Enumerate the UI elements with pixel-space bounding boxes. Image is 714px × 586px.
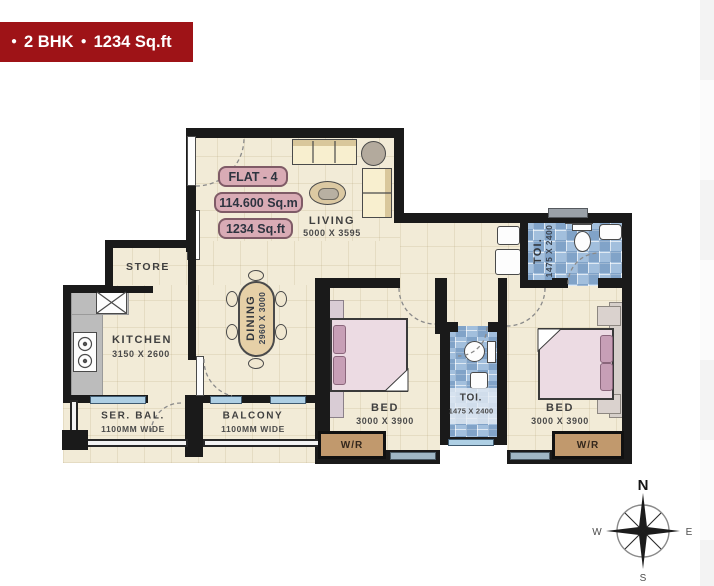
wall [598, 278, 632, 288]
dim-toilet-mid: 1475 X 2400 [449, 407, 494, 416]
bed1-pillow [333, 325, 346, 354]
dining-chair [248, 358, 264, 369]
dining-chair [275, 291, 287, 307]
compass-east-label: E [686, 527, 693, 538]
dining-chair [275, 324, 287, 340]
dining-chair [226, 291, 238, 307]
window [210, 396, 242, 404]
label-service-balcony: SER. BAL. [101, 411, 165, 422]
banner-area: 1234 Sq.ft [94, 33, 172, 52]
wall-recess [440, 445, 507, 464]
flat-area-sqm: 114.600 Sq.m [219, 196, 298, 210]
compass-north-label: N [638, 478, 649, 494]
bullet-icon: ● [11, 36, 17, 47]
compass-west-label: W [592, 527, 602, 538]
label-dining: DINING 2960 X 3000 [245, 292, 267, 345]
wall [394, 128, 404, 223]
label-balcony: BALCONY [223, 411, 284, 422]
label-bed1: BED [371, 402, 399, 414]
side-table-round [361, 141, 386, 166]
wall [552, 278, 568, 288]
banner-unit-type: 2 BHK [24, 33, 74, 52]
toilet-mid-basin [470, 372, 488, 389]
passage-chair [497, 226, 520, 245]
sofa-top [292, 139, 357, 165]
dim-bed1: 3000 X 3900 [356, 416, 414, 426]
wall [497, 322, 507, 450]
bed2-pillow [600, 335, 613, 363]
wall-block [62, 430, 88, 450]
toilet-top-wc-bowl [574, 231, 591, 252]
dim-service-balcony: 1100MM WIDE [101, 424, 165, 434]
wall [105, 240, 196, 248]
wall [400, 213, 632, 223]
flat-area-sqft: 1234 Sq.ft [226, 222, 285, 236]
toilet-top-basin [599, 224, 622, 240]
toilet-top-name: TOI. [532, 225, 544, 278]
dim-living: 5000 X 3595 [303, 228, 361, 238]
wall [185, 395, 203, 457]
wall [63, 285, 71, 403]
passage-chair [495, 249, 521, 275]
wardrobe-left: W/R [318, 431, 386, 459]
dim-kitchen: 3150 X 2600 [112, 349, 170, 359]
wall [186, 128, 404, 138]
window [548, 208, 588, 218]
compass-star [606, 493, 680, 569]
wall [188, 245, 196, 360]
dining-dim: 2960 X 3000 [257, 292, 267, 345]
window [270, 396, 306, 404]
wardrobe-left-label: W/R [341, 440, 363, 451]
toilet-top-wc-tank [572, 224, 592, 231]
wardrobe-right-label: W/R [577, 440, 599, 451]
wardrobe-right: W/R [552, 431, 624, 459]
window [90, 396, 146, 404]
bullet-icon: ● [81, 36, 87, 47]
toilet-mid-wc-bowl [464, 341, 485, 362]
compass-south-label: S [640, 573, 647, 584]
banner: ● 2 BHK ● 1234 Sq.ft [0, 22, 193, 62]
label-store: STORE [126, 261, 170, 273]
dim-balcony: 1100MM WIDE [221, 424, 285, 434]
floor-plan-page: ● 2 BHK ● 1234 Sq.ft [0, 0, 714, 586]
wall [622, 213, 632, 464]
window [510, 452, 550, 460]
bed1-pillow [333, 356, 346, 385]
wall [440, 322, 450, 450]
wall [520, 280, 552, 288]
flat-name: FLAT - 4 [228, 170, 277, 184]
wall [520, 218, 528, 288]
balcony-rail [203, 439, 330, 447]
kitchen-door-leaf [196, 356, 204, 396]
page-edge-strip [700, 0, 714, 586]
label-living: LIVING [309, 215, 355, 227]
label-bed2: BED [546, 402, 574, 414]
flat-name-box: FLAT - 4 [218, 166, 288, 187]
wall [498, 278, 507, 326]
label-toilet-top: TOI. 1475 X 2400 [532, 225, 554, 278]
flat-area-sqft-box: 1234 Sq.ft [218, 218, 293, 239]
entrance-door-leaf [187, 136, 196, 186]
window [390, 452, 436, 460]
bed2-side-table [597, 306, 621, 326]
toilet-mid-wc-tank [487, 341, 496, 363]
dining-chair [248, 270, 264, 281]
window [448, 439, 494, 446]
flat-area-sqm-box: 114.600 Sq.m [214, 192, 303, 213]
coffee-table [309, 181, 346, 205]
bed2-pillow [600, 363, 613, 391]
label-toilet-mid: TOI. [460, 393, 482, 404]
compass: N E S W [588, 478, 698, 584]
sofa-right [362, 168, 392, 218]
dining-chair [226, 324, 238, 340]
dim-bed2: 3000 X 3900 [531, 416, 589, 426]
kitchen-sink [96, 291, 127, 314]
toilet-top-dim: 1475 X 2400 [544, 225, 554, 278]
coffee-table-inner [318, 188, 339, 200]
stove [73, 332, 97, 372]
label-kitchen: KITCHEN [112, 334, 172, 346]
dining-name: DINING [245, 292, 257, 345]
